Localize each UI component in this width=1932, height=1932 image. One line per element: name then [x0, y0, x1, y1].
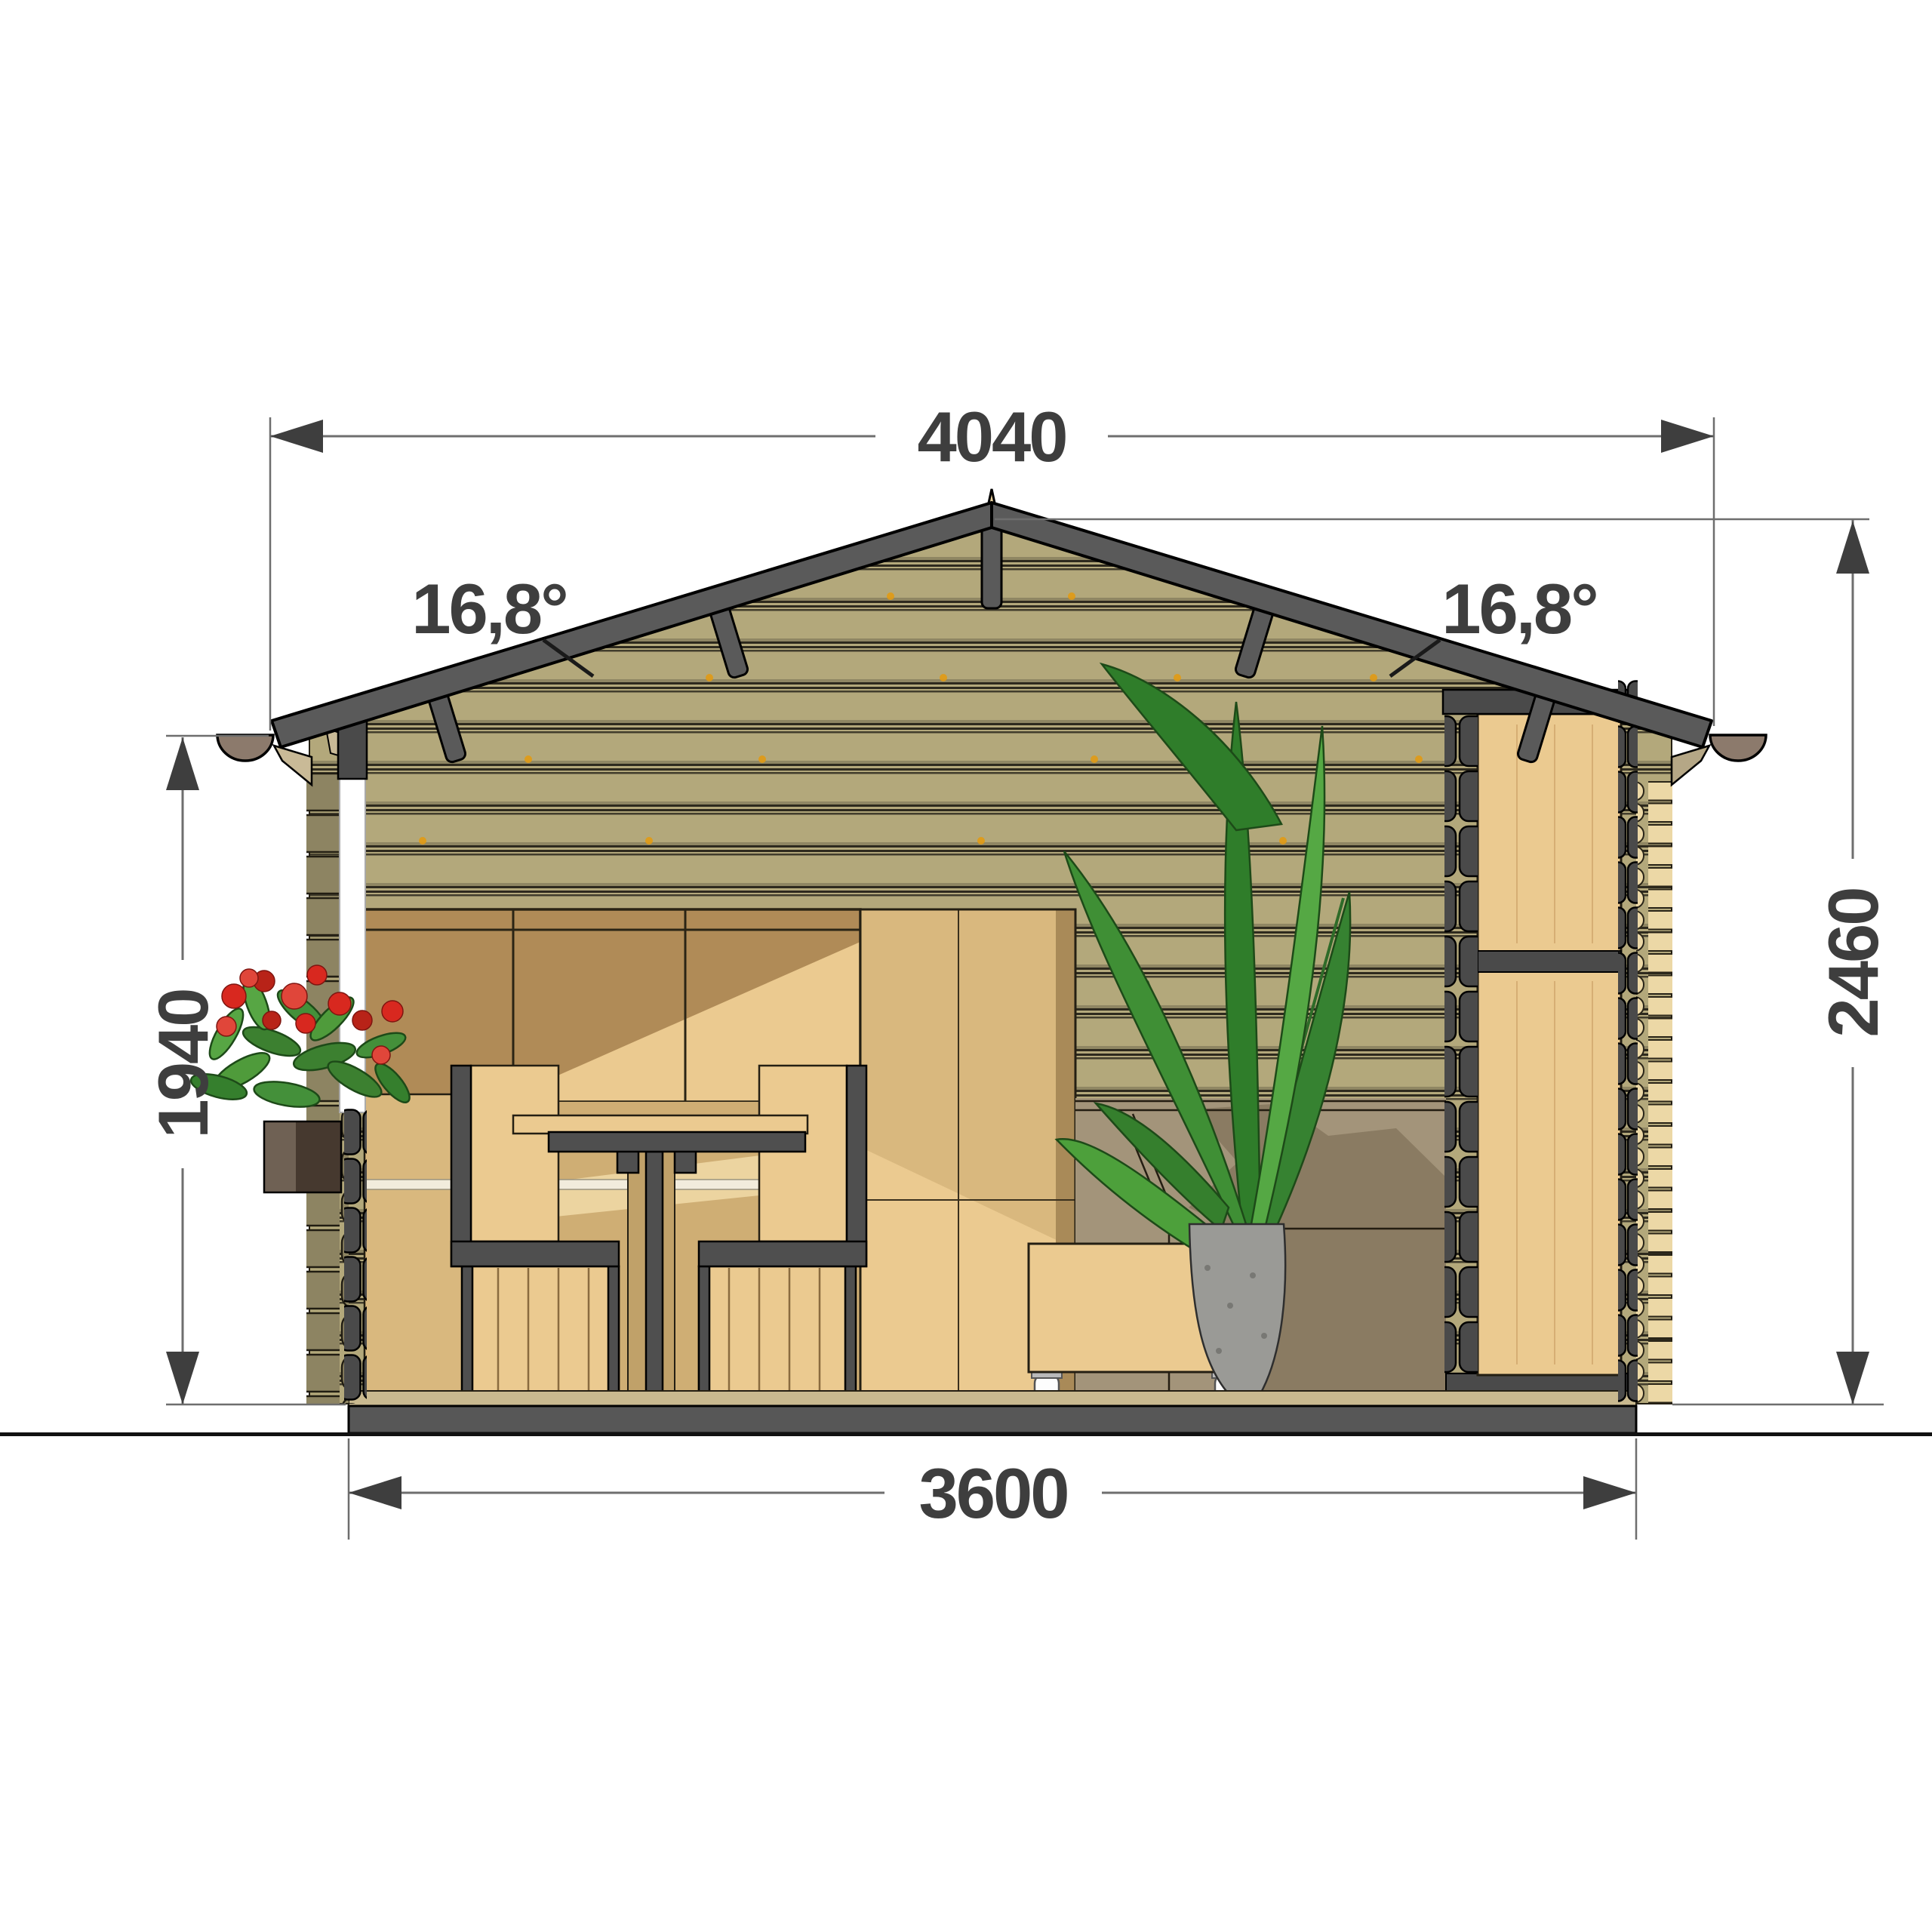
roof-angle-right-label: 16,8°	[1441, 569, 1597, 648]
soffit-left	[274, 746, 312, 785]
roof-width-label: 4040	[917, 397, 1066, 476]
right-wall-cut-logs	[1618, 679, 1638, 1404]
roof-angle-left-label: 16,8°	[411, 569, 567, 648]
wardrobe	[1443, 690, 1636, 1406]
dim-arrow-up	[166, 737, 199, 790]
flower-box-side	[264, 1121, 296, 1192]
dim-arrow-left	[270, 420, 323, 453]
floor-slab	[349, 1406, 1636, 1433]
total-height-label: 2460	[1814, 888, 1893, 1037]
cabin-cross-section-drawing: 4040 2460 1940 3600 16,8° 16,8°	[0, 0, 1932, 1932]
right-wall	[1618, 679, 1672, 1404]
dim-arrow-right	[1583, 1476, 1636, 1509]
ground-line	[0, 1432, 1932, 1436]
dim-arrow-down	[166, 1352, 199, 1404]
dim-arrow-left	[349, 1476, 401, 1509]
base-width-label: 3600	[918, 1454, 1067, 1533]
gutter-right	[1710, 735, 1766, 761]
wardrobe-divider	[1478, 951, 1621, 972]
drawing-page: 4040 2460 1940 3600 16,8° 16,8°	[0, 0, 1932, 1932]
floor-edge	[349, 1391, 1636, 1406]
wardrobe-frame-logs	[1444, 714, 1478, 1375]
dim-arrow-down	[1836, 1352, 1869, 1404]
gutter-left	[217, 735, 273, 761]
dim-arrow-up	[1836, 521, 1869, 574]
dim-arrow-right	[1661, 420, 1714, 453]
right-wall-exterior-logs	[1636, 780, 1672, 1404]
dining-set	[451, 1066, 866, 1404]
wall-height-label: 1940	[143, 989, 223, 1138]
ridge-post	[982, 525, 1001, 608]
soffit-right	[1672, 746, 1709, 785]
left-wall-cut-logs	[344, 1108, 367, 1404]
flower-box-front	[296, 1121, 341, 1192]
dimension-bottom-3600: 3600	[349, 1438, 1636, 1540]
